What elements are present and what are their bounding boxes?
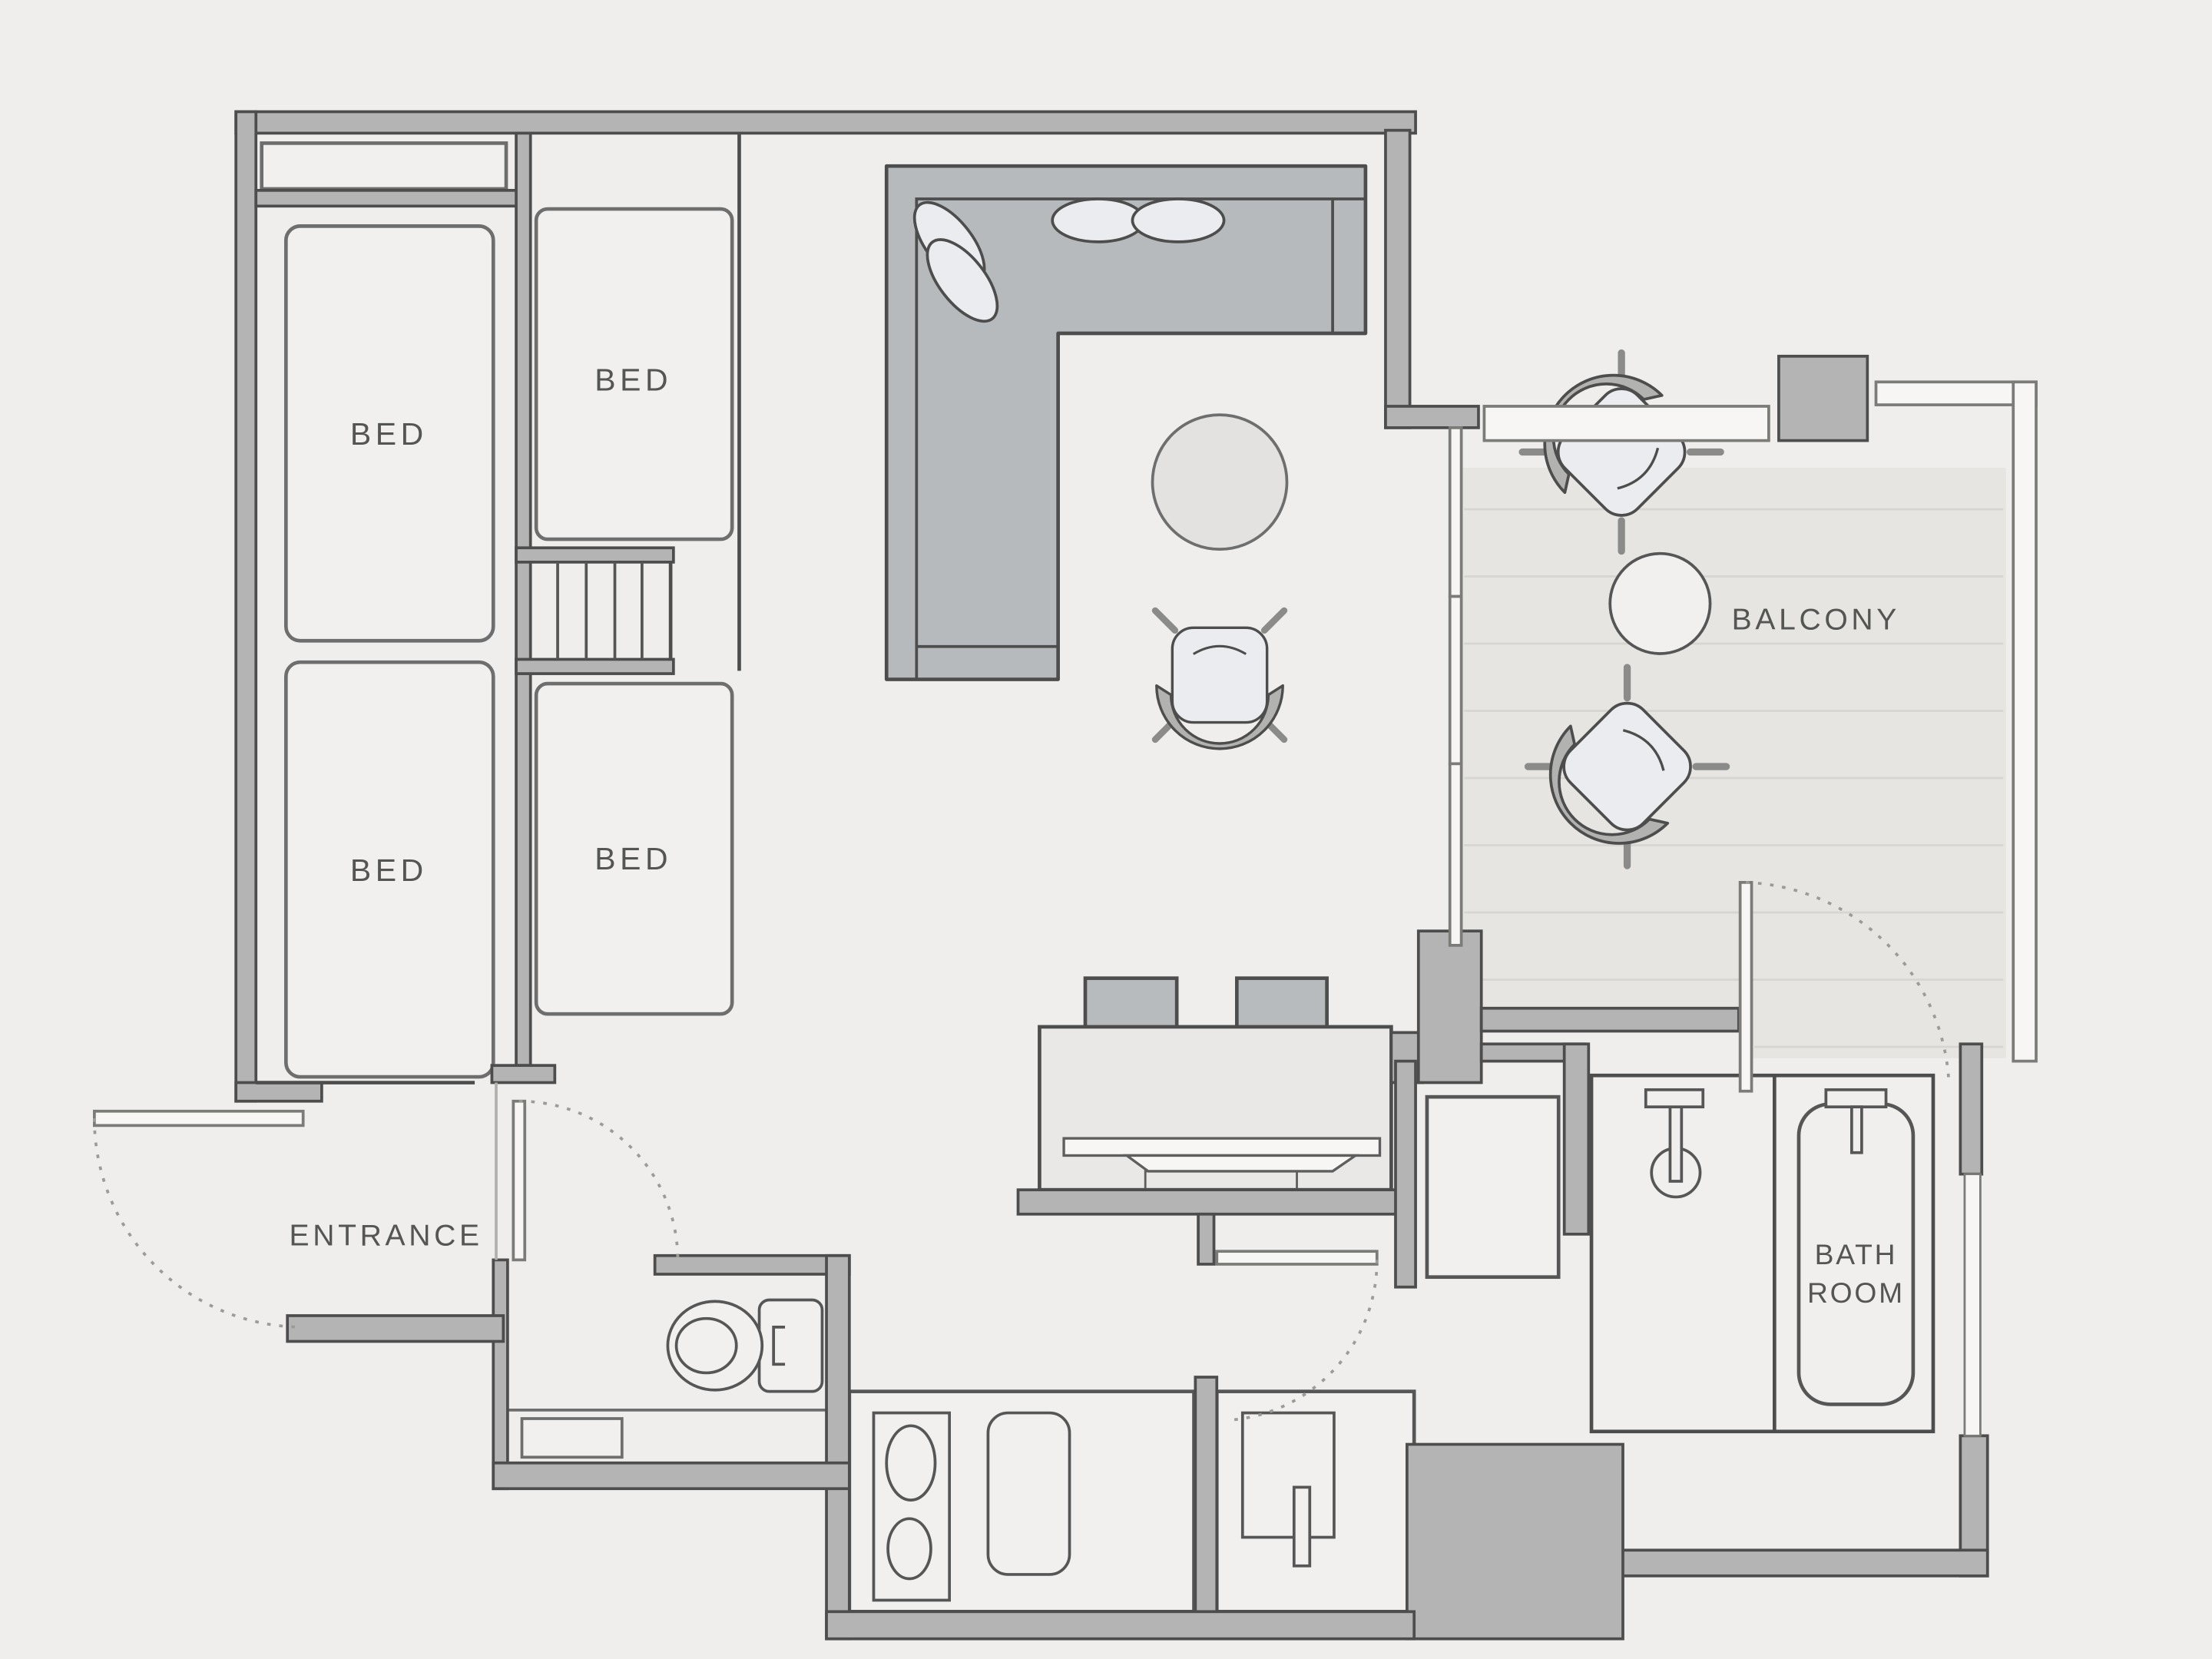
label-balcony: BALCONY <box>1732 603 1900 636</box>
entrance-door-arc <box>94 1118 303 1327</box>
wall-left-stub <box>236 1083 322 1101</box>
closet <box>262 143 506 189</box>
utility-block <box>1407 1445 1623 1639</box>
entrance-door[interactable] <box>94 1111 303 1126</box>
wall-toilet-top <box>655 1256 849 1274</box>
toilet-door-arc <box>519 1101 678 1260</box>
toilet <box>667 1300 822 1391</box>
sofa <box>886 166 1366 679</box>
washer-tap <box>1294 1487 1310 1565</box>
sink <box>988 1413 1069 1575</box>
wall-stairs-bottom <box>516 659 674 674</box>
wall-toilet-bottom <box>493 1463 849 1489</box>
pillar-balcony-top <box>1779 356 1867 441</box>
wall-bedroom-divider <box>516 133 531 1065</box>
balcony-door[interactable] <box>1740 882 1752 1091</box>
balcony-window <box>1484 406 1768 441</box>
living-room-chair <box>1155 611 1284 749</box>
floor-plan-page: BED BED BED BED BALCONY ENTRANCE BATH RO… <box>0 0 2212 1659</box>
wall-toilet-right <box>826 1256 849 1639</box>
stool-2 <box>1237 979 1326 1030</box>
wall-entrance-bottom <box>287 1316 503 1342</box>
wall-kitchen-bottom <box>826 1611 1414 1638</box>
wall-bathroom-right-upper <box>1960 1044 1982 1174</box>
washer-space <box>1243 1413 1334 1538</box>
wall-balcony-bottom <box>1482 1008 1739 1031</box>
pillar-balcony-left <box>1419 931 1482 1082</box>
wall-dining-bottom <box>1018 1190 1399 1214</box>
wall-toilet-left <box>493 1260 508 1488</box>
label-bedroom-right-top: BED <box>594 362 672 397</box>
toilet-room <box>508 1300 826 1457</box>
laundry-unit <box>1217 1392 1414 1612</box>
wall-kitchen-divider <box>1195 1377 1217 1611</box>
round-rug <box>1153 415 1287 549</box>
label-entrance: ENTRANCE <box>290 1220 483 1253</box>
kitchen-counter <box>849 1392 1194 1612</box>
toilet-door[interactable] <box>513 1101 525 1260</box>
floor-plan: BED BED BED BED BALCONY ENTRANCE BATH RO… <box>0 0 2212 1659</box>
kitchen-door[interactable] <box>1217 1251 1377 1264</box>
wall-top <box>236 111 1416 133</box>
balcony-table <box>1610 554 1710 654</box>
wall-bathroom-bottom <box>1621 1550 1988 1576</box>
wall-living-right <box>1386 131 1410 428</box>
wall-left <box>236 111 256 1101</box>
wall-closet-right <box>1565 1044 1589 1234</box>
label-bathroom-line2: ROOM <box>1807 1277 1905 1309</box>
wall-stairs-top <box>516 548 674 562</box>
toilet-cabinet <box>522 1419 622 1457</box>
stairs <box>558 562 642 660</box>
wall-living-right-stub <box>1386 406 1479 428</box>
wall-divider-cap <box>492 1065 555 1082</box>
dining-counter <box>1039 1027 1391 1190</box>
wall-door-stub <box>1198 1214 1214 1264</box>
stove <box>873 1413 949 1601</box>
counter-dish <box>1127 1155 1356 1171</box>
railing-right <box>2013 382 2036 1061</box>
label-bedroom-left-top: BED <box>350 416 428 452</box>
sliding-door[interactable] <box>1450 428 1462 945</box>
label-bedroom-right-bottom: BED <box>594 841 672 876</box>
wall-under-closet <box>256 190 523 206</box>
bathroom-window <box>1965 1174 1980 1436</box>
refrigerator <box>1427 1097 1558 1277</box>
label-bedroom-left-bottom: BED <box>350 853 428 888</box>
stool-1 <box>1085 979 1177 1030</box>
counter-shelf <box>1064 1138 1379 1155</box>
label-bathroom-line1: BATH <box>1815 1238 1898 1270</box>
wall-closet-left <box>1396 1061 1416 1287</box>
